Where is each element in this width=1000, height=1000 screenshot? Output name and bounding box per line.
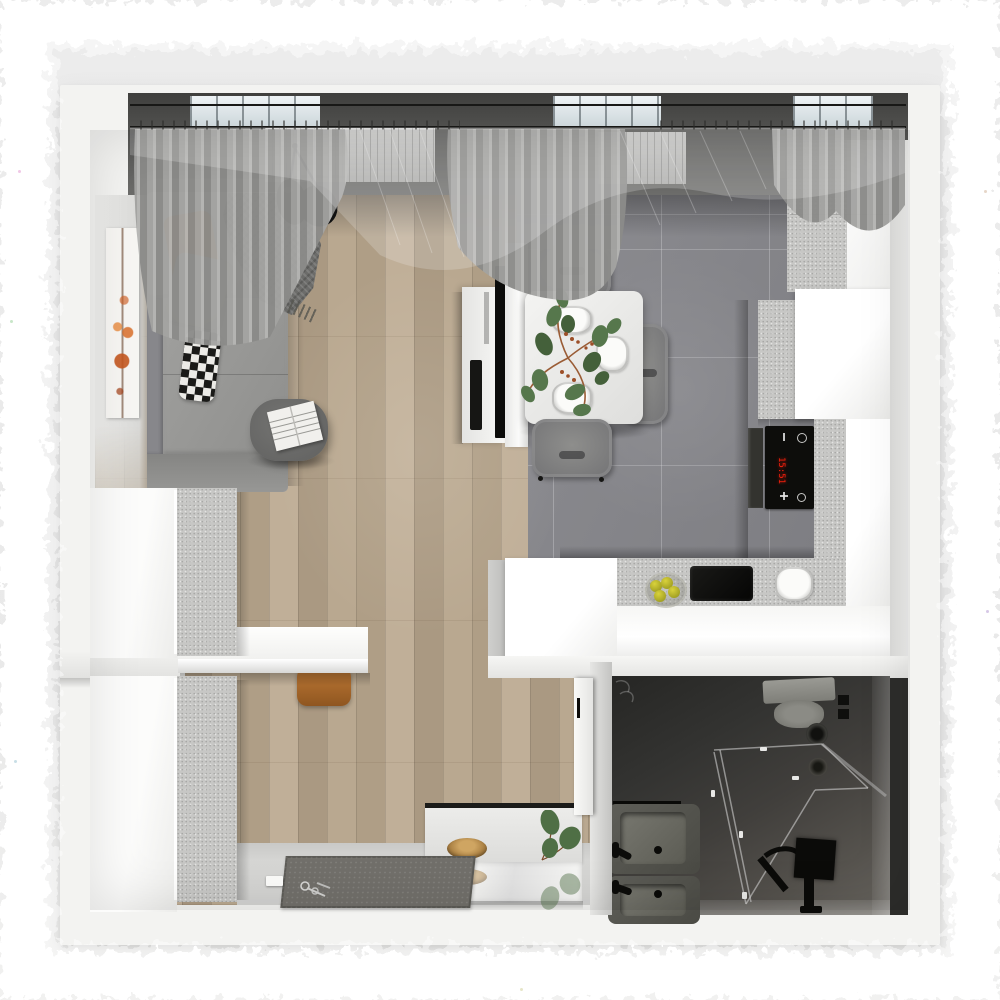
border-speck — [984, 190, 987, 193]
apartment-render: 15:51 — [0, 0, 1000, 1000]
border-speck — [520, 988, 523, 991]
border-speck — [10, 320, 13, 323]
border-speck — [986, 610, 989, 613]
border-speck — [18, 170, 21, 173]
rough-paper-frame — [0, 0, 1000, 1000]
border-speck — [14, 760, 17, 763]
